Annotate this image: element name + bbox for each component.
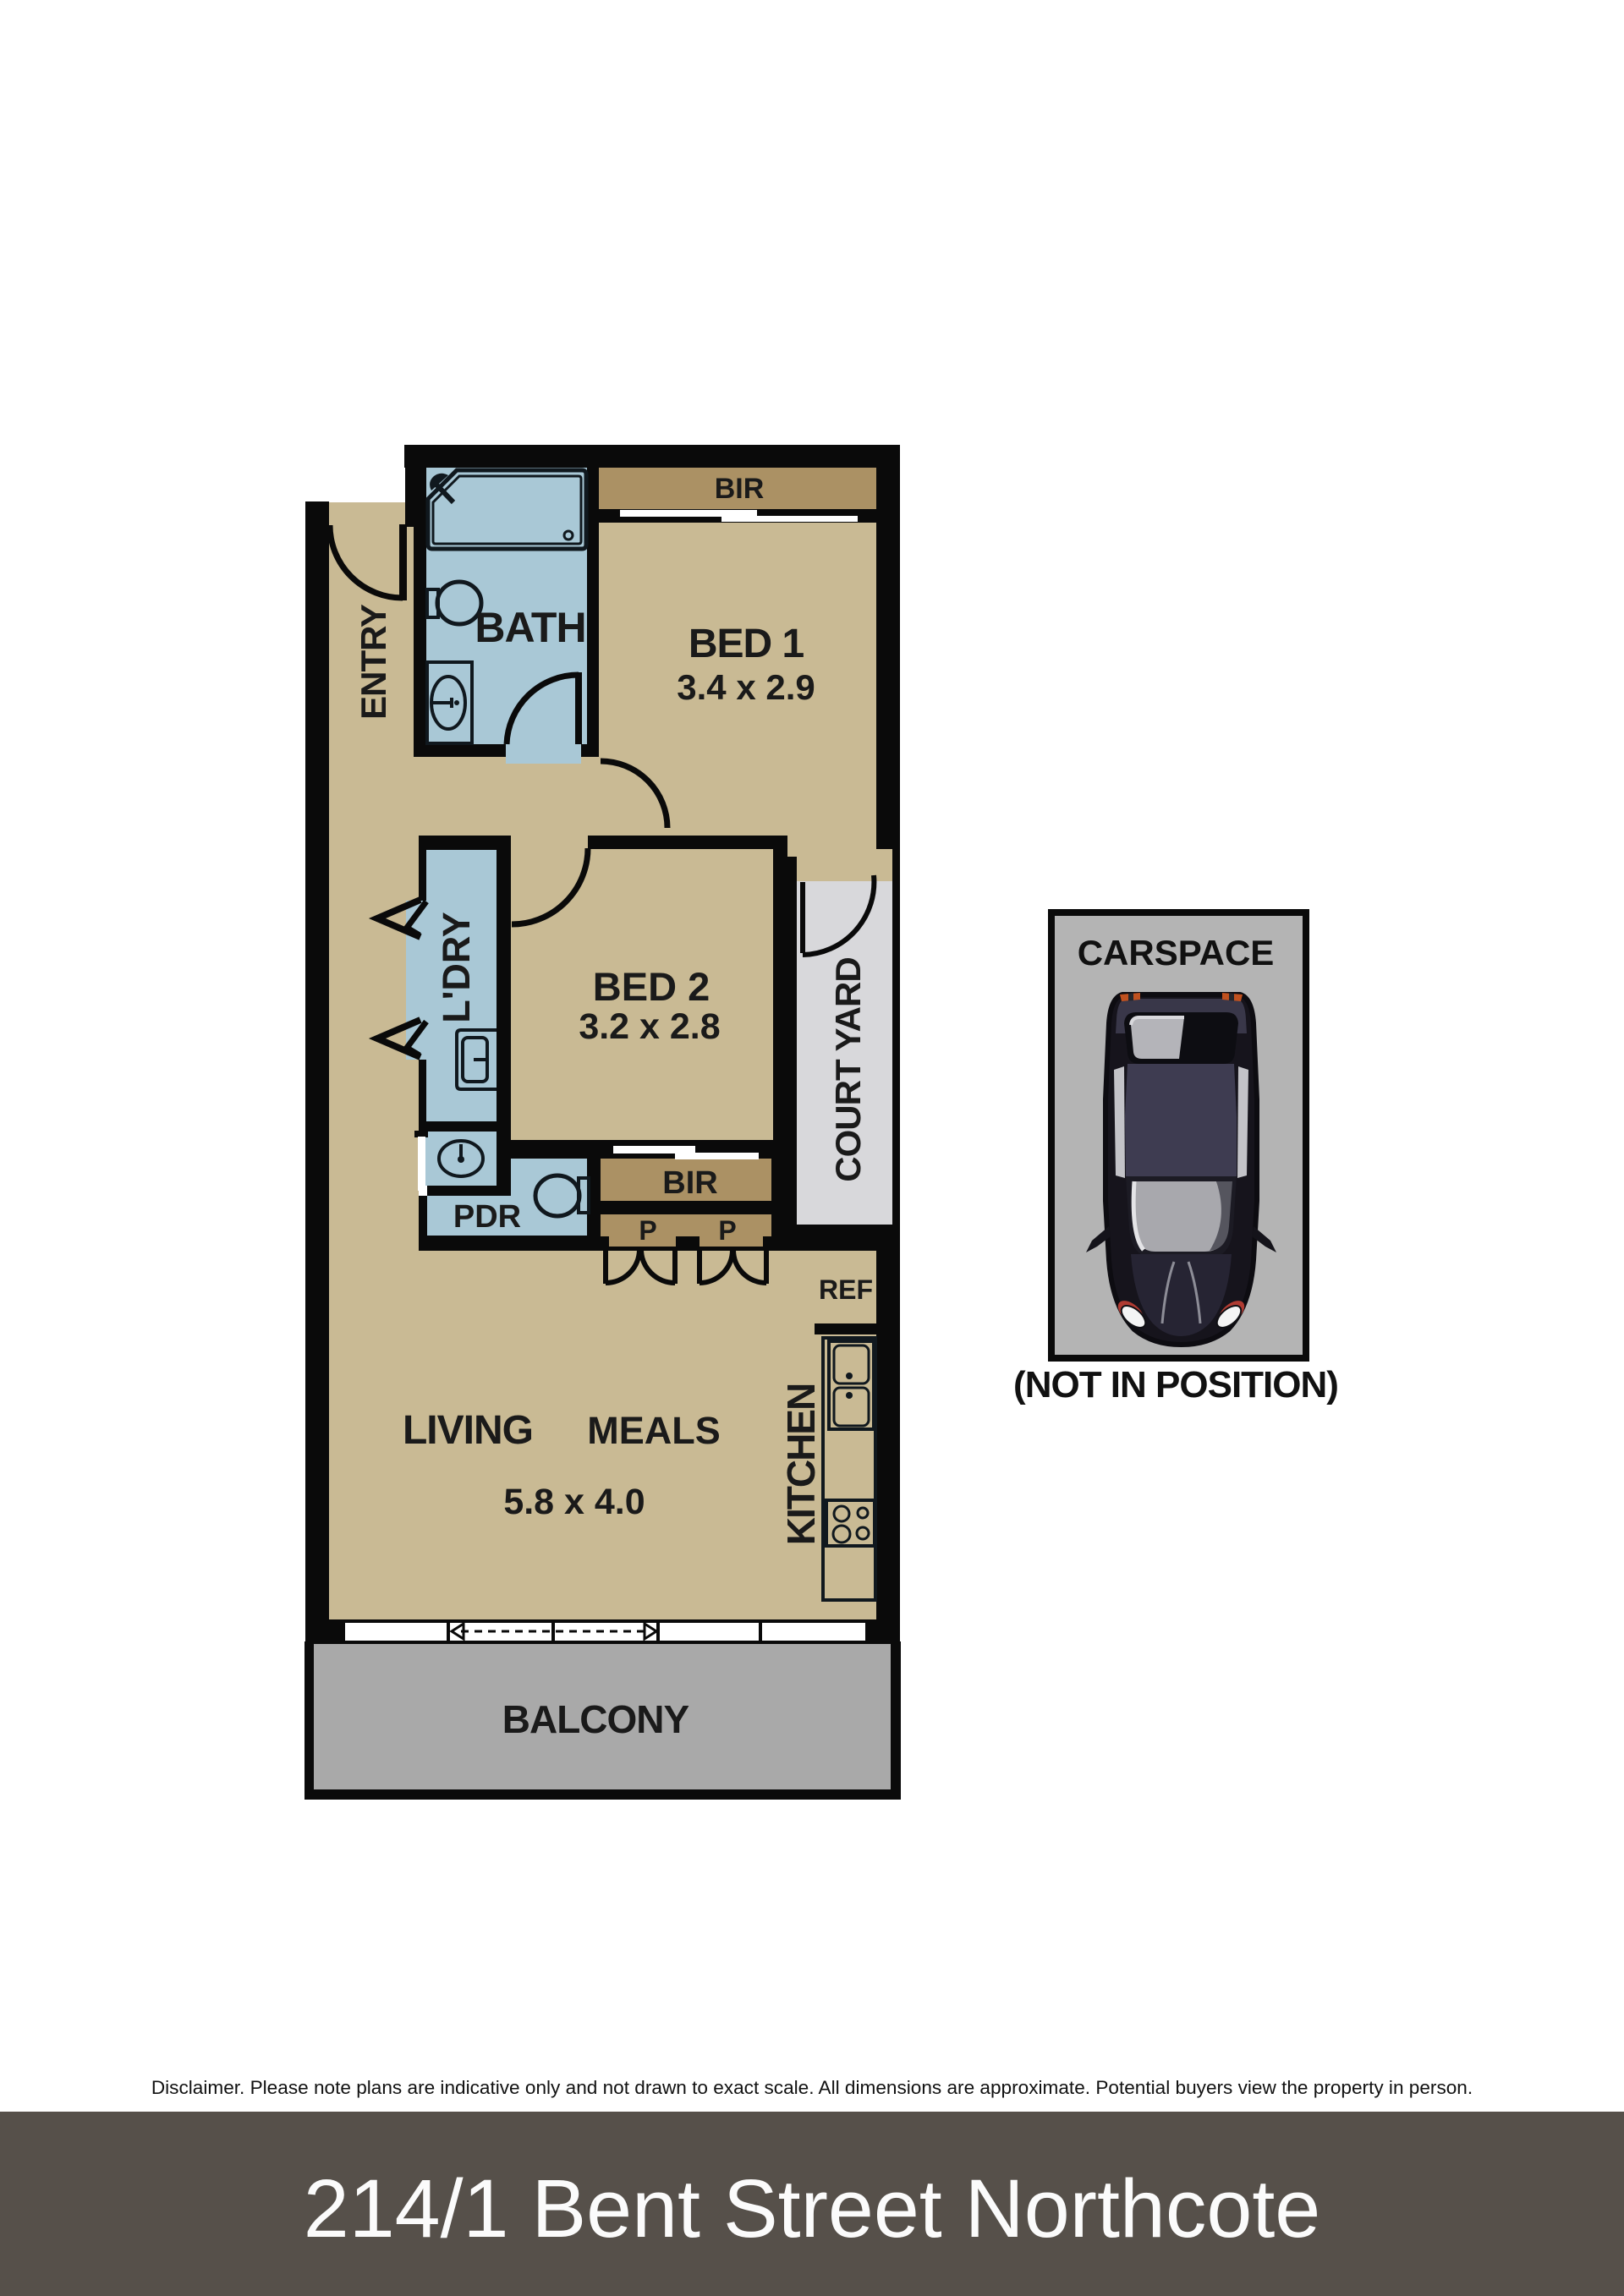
svg-text:P: P: [718, 1215, 736, 1246]
svg-text:3.4 x 2.9: 3.4 x 2.9: [677, 667, 815, 707]
svg-text:MEALS: MEALS: [587, 1409, 721, 1452]
svg-text:LIVING: LIVING: [403, 1408, 533, 1453]
svg-text:BATH: BATH: [475, 604, 585, 651]
svg-text:P: P: [639, 1215, 656, 1246]
svg-text:BIR: BIR: [715, 473, 765, 505]
svg-text:L'DRY: L'DRY: [435, 912, 478, 1023]
svg-text:BED 2: BED 2: [593, 964, 710, 1009]
svg-text:KITCHEN: KITCHEN: [779, 1384, 823, 1545]
svg-text:BALCONY: BALCONY: [502, 1697, 689, 1741]
svg-text:214/1 Bent Street Northcote: 214/1 Bent Street Northcote: [304, 2162, 1320, 2255]
svg-text:5.8 x 4.0: 5.8 x 4.0: [503, 1482, 645, 1522]
svg-text:(NOT IN POSITION): (NOT IN POSITION): [1013, 1364, 1338, 1406]
svg-text:PDR: PDR: [453, 1199, 521, 1235]
svg-text:BED 1: BED 1: [689, 622, 804, 666]
svg-text:ENTRY: ENTRY: [354, 604, 393, 720]
svg-text:3.2 x 2.8: 3.2 x 2.8: [579, 1006, 720, 1047]
svg-text:BIR: BIR: [662, 1165, 717, 1201]
svg-text:COURT YARD: COURT YARD: [828, 957, 868, 1181]
svg-text:REF: REF: [819, 1274, 873, 1305]
svg-text:Disclaimer. Please note plans: Disclaimer. Please note plans are indica…: [151, 2077, 1473, 2098]
svg-text:CARSPACE: CARSPACE: [1078, 933, 1275, 973]
